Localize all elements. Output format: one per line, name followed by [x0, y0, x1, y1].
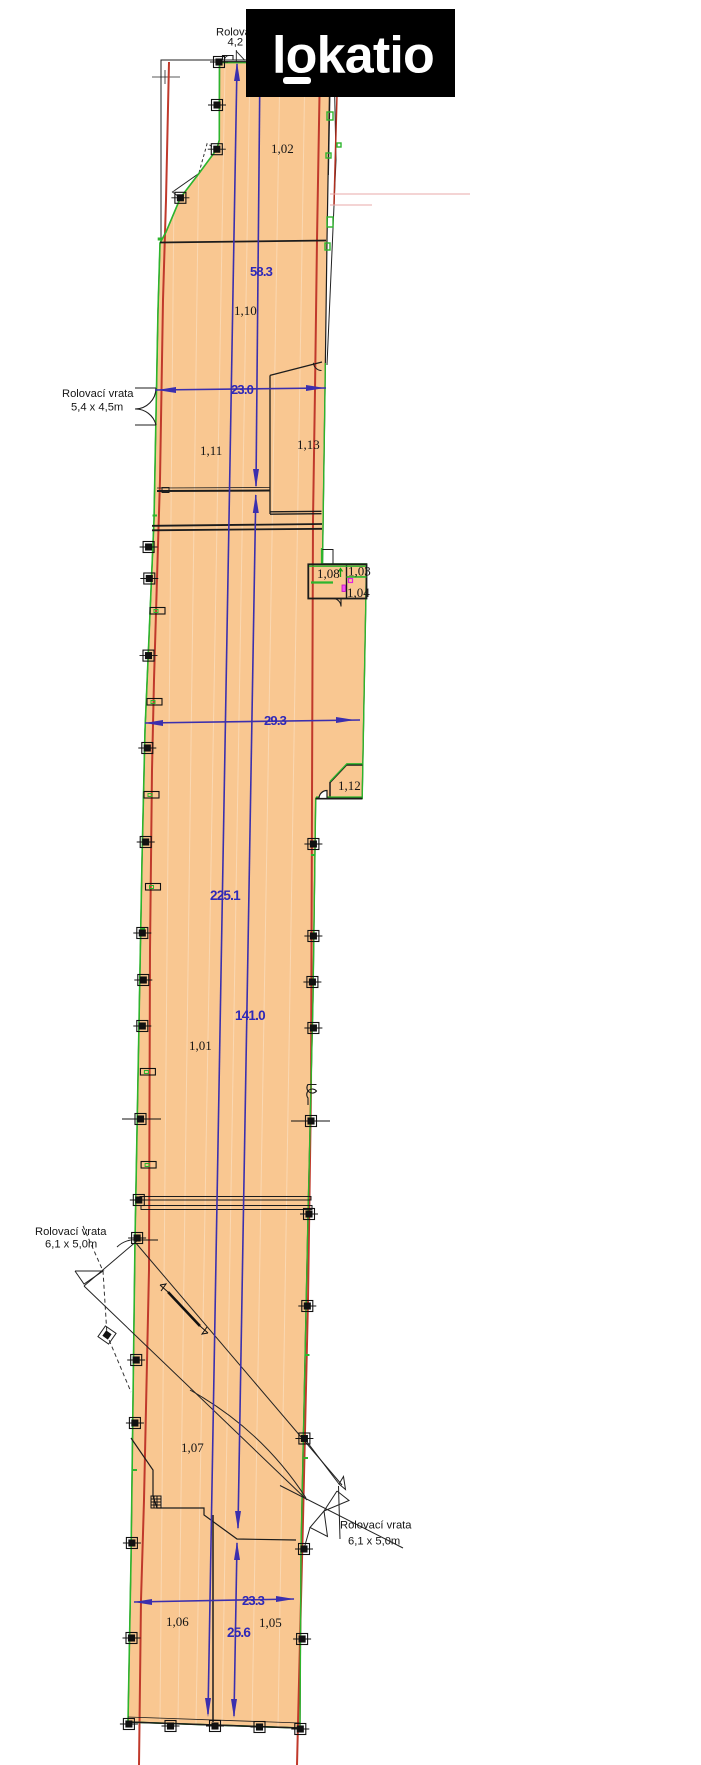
svg-text:1,13: 1,13 [297, 437, 320, 452]
svg-text:1,12: 1,12 [338, 778, 361, 793]
svg-text:58.3: 58.3 [250, 264, 273, 279]
svg-text:141.0: 141.0 [235, 1008, 265, 1023]
svg-text:23.3: 23.3 [242, 1593, 265, 1608]
svg-text:Rolovací vrata: Rolovací vrata [35, 1226, 107, 1238]
svg-text:1,08: 1,08 [317, 566, 340, 581]
svg-text:5,4 x 4,5m: 5,4 x 4,5m [71, 402, 123, 414]
svg-text:1,01: 1,01 [189, 1038, 212, 1053]
svg-text:1,10: 1,10 [234, 303, 257, 318]
svg-text:225.1: 225.1 [210, 888, 241, 903]
svg-text:1,06: 1,06 [166, 1614, 189, 1629]
svg-text:29.3: 29.3 [264, 713, 287, 728]
svg-text:Rolovací vrata: Rolovací vrata [62, 388, 134, 400]
svg-text:6,1 x 5,0m: 6,1 x 5,0m [348, 1536, 400, 1548]
svg-text:23.0: 23.0 [231, 382, 254, 397]
svg-text:1,04: 1,04 [347, 585, 370, 600]
svg-text:1,07: 1,07 [181, 1440, 204, 1455]
svg-text:25.6: 25.6 [227, 1625, 251, 1640]
svg-text:1,03: 1,03 [348, 564, 371, 579]
svg-text:1,05: 1,05 [259, 1615, 282, 1630]
svg-text:1,02: 1,02 [271, 141, 294, 156]
svg-text:Rolovací vrata: Rolovací vrata [340, 1520, 412, 1532]
svg-text:lokatio: lokatio [272, 27, 434, 85]
svg-text:6,1 x 5,0m: 6,1 x 5,0m [45, 1239, 97, 1251]
svg-text:1,11: 1,11 [200, 443, 222, 458]
